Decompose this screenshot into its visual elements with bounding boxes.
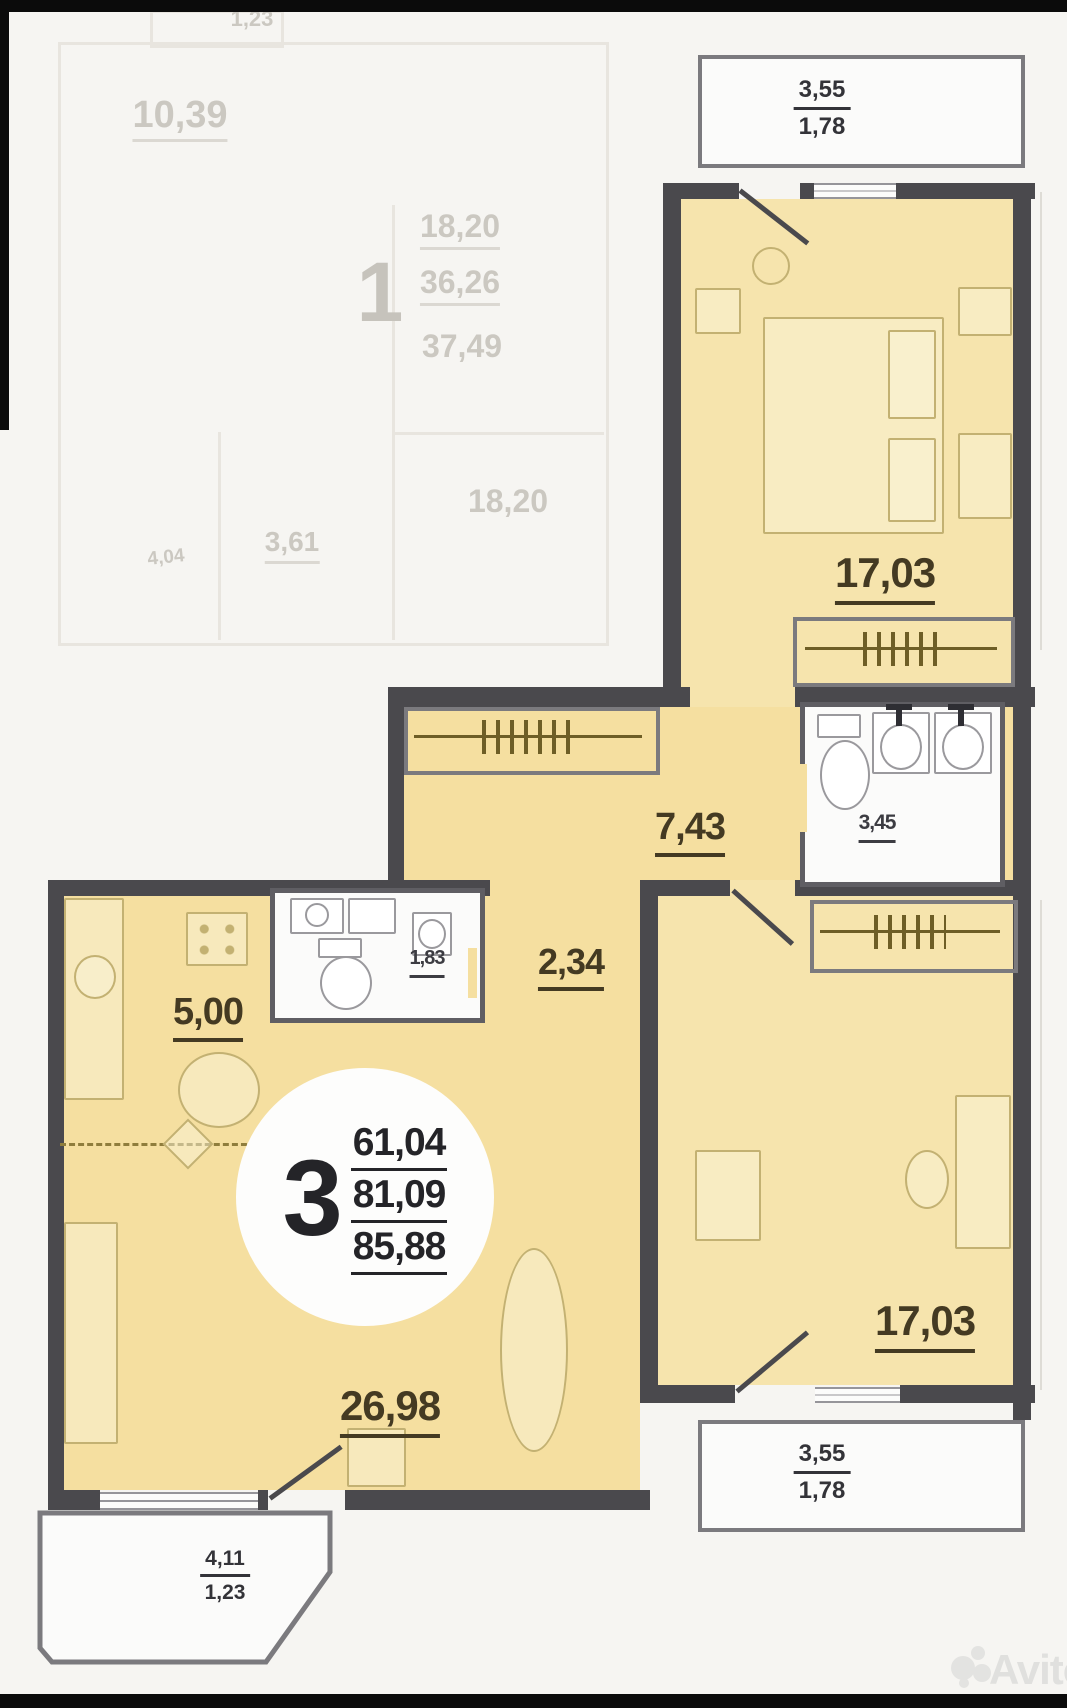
kitchen-counter (64, 898, 124, 1100)
avito-logo-icon (959, 1678, 969, 1688)
window (814, 183, 896, 199)
ghost-room-area: 4,04 (147, 546, 186, 569)
ghost-wall (392, 432, 604, 435)
unit-area-living: 61,04 (351, 1119, 448, 1171)
balcony-bottom-left (36, 1510, 334, 1666)
toilet (320, 956, 372, 1010)
room-area-kitchen: 5,00 (173, 993, 243, 1042)
balcony-area-top-right: 3,55 1,78 (794, 78, 851, 139)
wall-segment (663, 183, 681, 707)
photo-edge-left (0, 0, 9, 430)
facade-line (1040, 900, 1042, 1390)
unit-area-total: 85,88 (351, 1223, 448, 1275)
bathroom-door-opening (798, 764, 807, 832)
toilet (820, 740, 870, 810)
wall-segment (800, 183, 814, 199)
wardrobe-rail-icon (805, 630, 997, 668)
watermark-brand: Avito (989, 1646, 1067, 1694)
room-area-bedroom-bottom: 17,03 (875, 1300, 975, 1353)
ceiling-light-icon (752, 247, 790, 285)
avito-logo-icon (951, 1656, 975, 1680)
ghost-room-area: 18,20 (468, 485, 548, 517)
balcony-area-bottom-left: 4,11 1,23 (200, 1548, 250, 1603)
balcony-full-area: 3,55 (794, 78, 851, 110)
avito-logo-icon (971, 1646, 985, 1660)
wardrobe-rail-icon (414, 718, 642, 756)
corridor-opening (490, 880, 640, 896)
ghost-wall (218, 432, 221, 640)
faucet-icon (886, 704, 912, 710)
dining-table (500, 1248, 568, 1452)
ghost-unit-area: 37,49 (422, 330, 502, 362)
sink-basin (418, 919, 446, 949)
wall-segment (258, 1490, 268, 1510)
balcony-area-bottom-right: 3,55 1,78 (794, 1442, 851, 1503)
round-table (178, 1052, 260, 1128)
chair (905, 1150, 949, 1209)
balcony-top-right (698, 55, 1025, 168)
dresser (958, 433, 1012, 519)
nightstand (958, 287, 1012, 336)
balcony-reduced-area: 1,78 (794, 1474, 851, 1503)
balcony-bottom-right (698, 1420, 1025, 1532)
window (815, 1387, 900, 1403)
letterbox-bottom (0, 1694, 1067, 1708)
watermark: Avito (949, 1644, 1067, 1696)
sink-basin (880, 724, 922, 770)
wall-segment (650, 880, 730, 896)
wall-segment (345, 1490, 650, 1510)
wc-counter (348, 898, 396, 934)
balcony-full-area: 3,55 (794, 1442, 851, 1474)
pillow (888, 438, 936, 522)
room-area-bathroom: 3,45 (859, 812, 896, 843)
window (100, 1492, 258, 1510)
ghost-unit-number: 1 (357, 250, 404, 334)
washer-drum (305, 903, 329, 927)
balcony-reduced-area: 1,78 (794, 110, 851, 139)
cabinet (695, 1150, 761, 1241)
sink-basin (942, 724, 984, 770)
stove (186, 912, 248, 966)
bedroom-top-door-opening (690, 687, 795, 707)
wall-segment (48, 1490, 100, 1510)
room-area-living: 26,98 (340, 1385, 440, 1438)
room-area-wc: 1,83 (410, 948, 445, 978)
kitchen-sink (74, 955, 116, 999)
ghost-unit-area: 36,26 (420, 266, 500, 306)
room-area-hall: 7,43 (655, 808, 725, 857)
balcony-reduced-area: 1,23 (200, 1577, 250, 1603)
unit-number: 3 (283, 1135, 341, 1260)
wardrobe-rail-icon (820, 913, 1000, 951)
unit-areas: 61,04 81,09 85,88 (351, 1119, 448, 1275)
armchair (695, 288, 741, 334)
zone-divider (60, 1143, 256, 1146)
sofa (64, 1222, 118, 1444)
wall-segment (388, 707, 404, 880)
pillow (888, 330, 936, 419)
floor-plan-photo: 1,23 10,39 1 18,20 36,26 37,49 18,20 3,6… (0, 0, 1067, 1708)
room-area-bedroom-top: 17,03 (835, 552, 935, 605)
ghost-unit-area: 18,20 (420, 210, 500, 250)
ghost-room-area: 3,61 (265, 528, 320, 564)
wall-segment (640, 880, 658, 1385)
facade-line (1040, 192, 1042, 650)
letterbox-top (0, 0, 1067, 12)
toilet-tank (817, 714, 861, 738)
desk (955, 1095, 1011, 1249)
toilet-tank (318, 938, 362, 958)
faucet-icon (948, 704, 974, 710)
wall-segment (900, 1385, 1035, 1403)
wall-segment (640, 1385, 735, 1403)
room-area-corridor: 2,34 (538, 944, 604, 991)
balcony-full-area: 4,11 (200, 1548, 250, 1577)
wall-segment (388, 687, 690, 707)
wall-segment (48, 880, 64, 1510)
unit-badge: 3 61,04 81,09 85,88 (236, 1068, 494, 1326)
wall-segment (1013, 183, 1031, 1420)
unit-area-usable: 81,09 (351, 1171, 448, 1223)
wc-door-opening (468, 948, 477, 998)
ghost-room-area: 10,39 (132, 96, 227, 142)
